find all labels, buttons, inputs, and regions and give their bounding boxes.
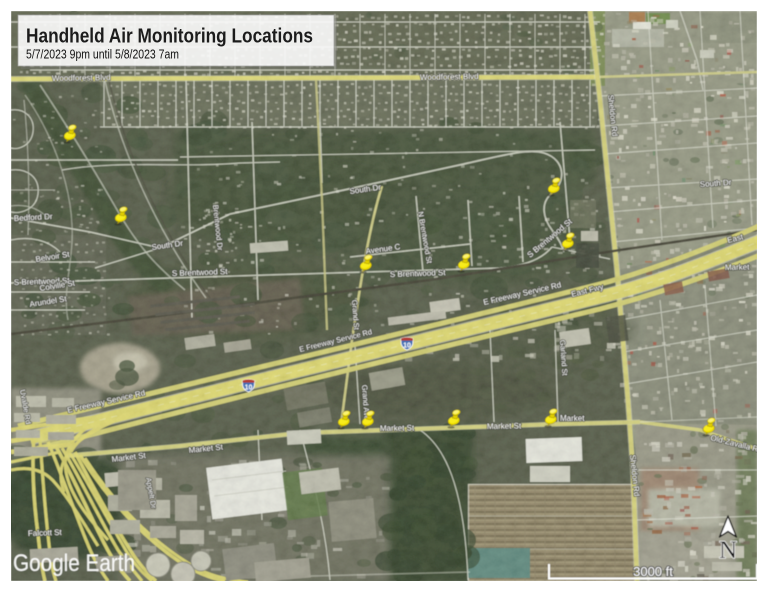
svg-text:3000 ft: 3000 ft xyxy=(633,564,673,579)
svg-text:N: N xyxy=(719,537,737,564)
svg-text:Google Earth: Google Earth xyxy=(13,550,135,577)
svg-text:Woodforest Blvd: Woodforest Blvd xyxy=(52,73,111,83)
svg-text:10: 10 xyxy=(403,343,411,350)
svg-text:5/7/2023 9pm until 5/8/2023 7a: 5/7/2023 9pm until 5/8/2023 7am xyxy=(26,47,179,62)
svg-text:Handheld Air Monitoring Locati: Handheld Air Monitoring Locations xyxy=(26,26,313,48)
svg-text:Woodforest Blvd: Woodforest Blvd xyxy=(420,72,479,82)
svg-text:Market St: Market St xyxy=(380,423,415,433)
svg-text:Market: Market xyxy=(560,414,585,423)
svg-text:10: 10 xyxy=(245,385,253,392)
svg-text:Market: Market xyxy=(725,263,750,272)
svg-text:Market St: Market St xyxy=(487,421,522,431)
svg-text:Falcott St: Falcott St xyxy=(28,528,63,538)
